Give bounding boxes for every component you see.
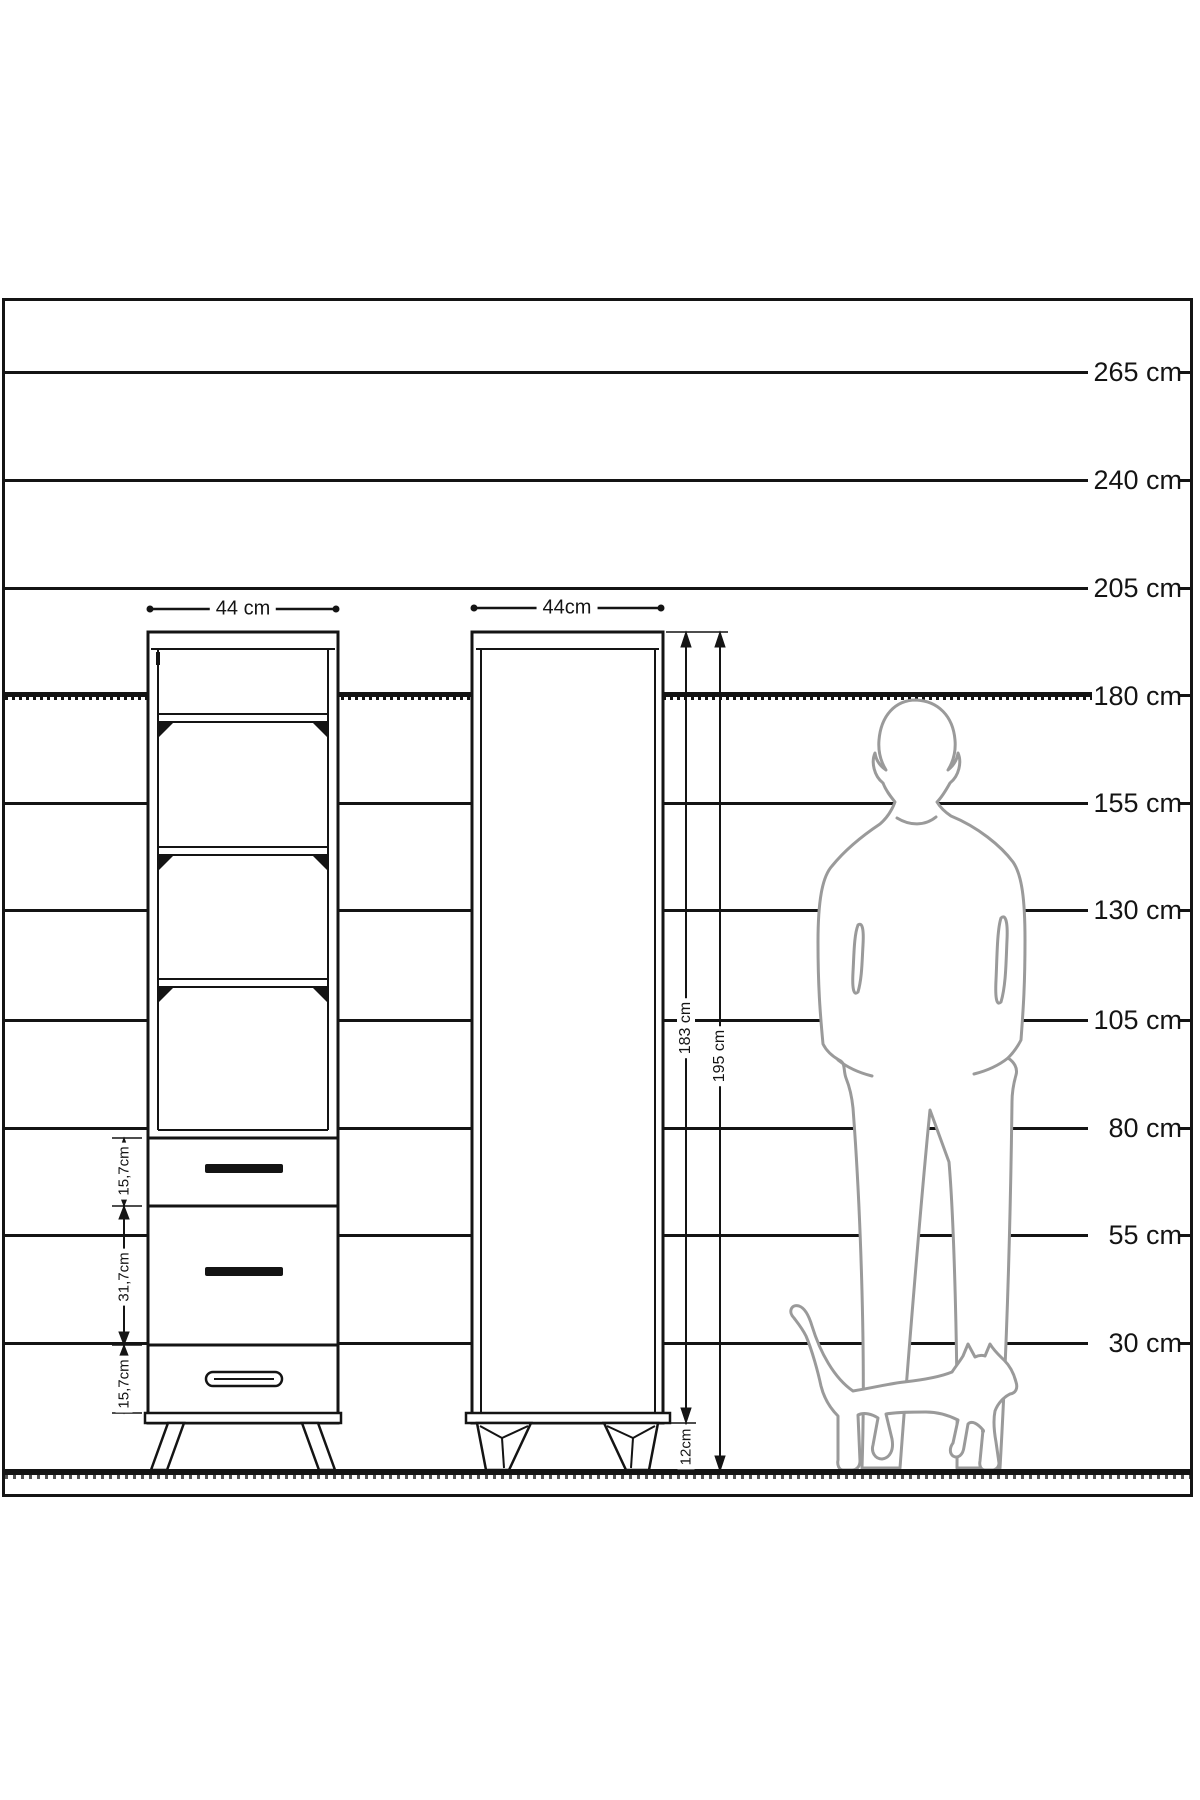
dim-195-arrow-top bbox=[715, 632, 725, 647]
dim-drawers-arrow-mid1-down bbox=[119, 1206, 129, 1219]
floor-hatch-teeth bbox=[5, 1475, 1190, 1479]
drawer-1-height-label: 15,7cm bbox=[116, 1142, 133, 1199]
drawing-layer bbox=[0, 0, 1200, 1800]
left-cabinet bbox=[145, 632, 341, 1470]
right-cabinet-leg-height-label: 12cm bbox=[678, 1425, 695, 1470]
cat-eye-dot bbox=[981, 1429, 985, 1433]
left-cabinet-leg-r bbox=[302, 1423, 335, 1470]
right-cabinet-base bbox=[466, 1413, 670, 1423]
dim-183-arrow-bottom bbox=[681, 1408, 691, 1423]
diagram-canvas: 265 cm 240 cm 205 cm 180 cm 155 cm 130 c… bbox=[0, 0, 1200, 1800]
right-cabinet-width-label: 44cm bbox=[537, 597, 598, 620]
dim-left-width-end-l bbox=[147, 606, 154, 613]
drawer-2-height-label: 31,7cm bbox=[116, 1248, 133, 1305]
right-cabinet-body bbox=[472, 632, 663, 1423]
dim-183-arrow-top bbox=[681, 632, 691, 647]
dim-right-width-end-r bbox=[658, 605, 665, 612]
dim-left-width-end-r bbox=[333, 606, 340, 613]
drawer-2-handle bbox=[205, 1267, 283, 1276]
dim-right-width-end-l bbox=[471, 605, 478, 612]
left-cabinet-body bbox=[148, 632, 338, 1423]
right-cabinet bbox=[466, 632, 670, 1470]
dim-drawers-arrow-mid2-up bbox=[119, 1332, 129, 1345]
left-cabinet-width-label: 44 cm bbox=[210, 598, 276, 621]
left-cabinet-hinge-mark bbox=[156, 652, 160, 665]
left-cabinet-base bbox=[145, 1413, 341, 1423]
right-cabinet-total-height-label: 195 cm bbox=[711, 1026, 729, 1086]
drawer-1-handle bbox=[205, 1164, 283, 1173]
left-cabinet-leg-l bbox=[151, 1423, 184, 1470]
drawer-3-height-label: 15,7cm bbox=[116, 1355, 133, 1412]
right-cabinet-body-height-label: 183 cm bbox=[677, 998, 695, 1058]
